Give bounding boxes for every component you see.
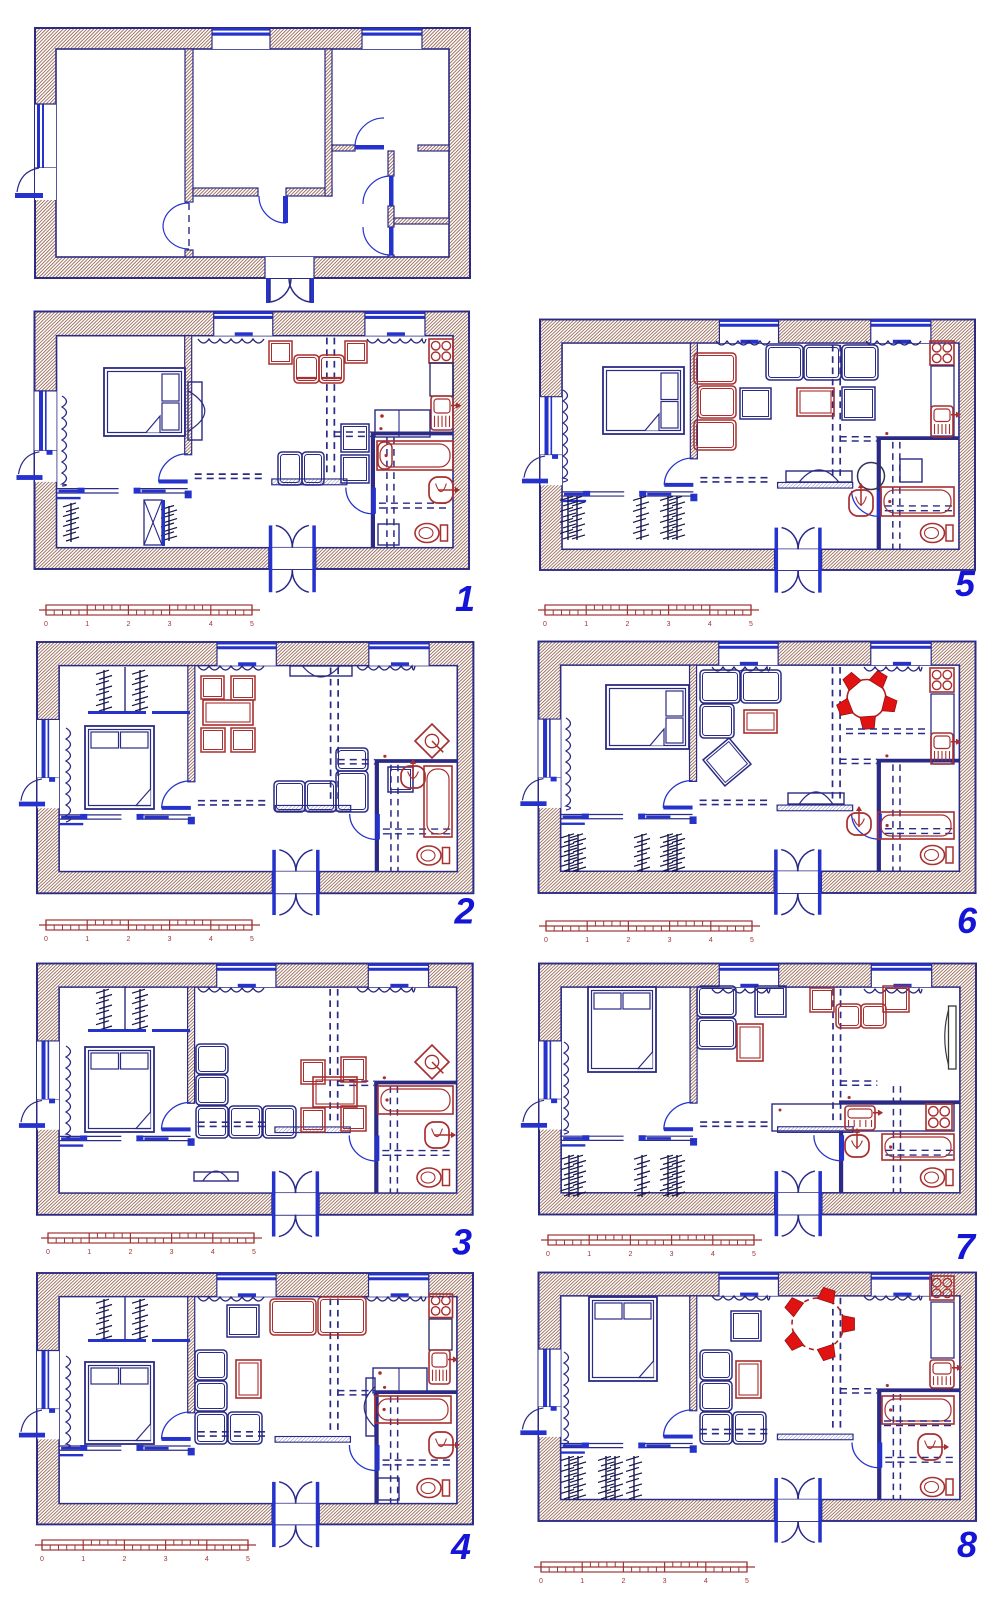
svg-text:3: 3	[670, 1251, 674, 1258]
svg-text:0: 0	[544, 937, 548, 944]
svg-text:4: 4	[708, 621, 712, 628]
svg-text:3: 3	[668, 937, 672, 944]
svg-text:6: 6	[957, 900, 978, 941]
svg-text:3: 3	[667, 621, 671, 628]
svg-text:2: 2	[122, 1556, 126, 1563]
svg-text:4: 4	[709, 937, 713, 944]
svg-text:2: 2	[126, 621, 130, 628]
svg-text:3: 3	[168, 621, 172, 628]
svg-text:2: 2	[625, 621, 629, 628]
svg-text:4: 4	[209, 936, 213, 943]
svg-text:2: 2	[621, 1578, 625, 1585]
svg-text:5: 5	[745, 1578, 749, 1585]
svg-text:5: 5	[252, 1249, 256, 1256]
svg-text:7: 7	[955, 1226, 977, 1267]
svg-text:0: 0	[44, 936, 48, 943]
svg-text:3: 3	[170, 1249, 174, 1256]
svg-text:0: 0	[44, 621, 48, 628]
svg-text:1: 1	[87, 1249, 91, 1256]
svg-text:3: 3	[663, 1578, 667, 1585]
svg-text:5: 5	[750, 937, 754, 944]
svg-text:2: 2	[628, 1251, 632, 1258]
svg-text:8: 8	[957, 1524, 977, 1565]
svg-text:4: 4	[704, 1578, 708, 1585]
svg-text:5: 5	[749, 621, 753, 628]
svg-text:0: 0	[40, 1556, 44, 1563]
svg-text:0: 0	[46, 1249, 50, 1256]
svg-text:5: 5	[955, 563, 976, 604]
svg-text:4: 4	[211, 1249, 215, 1256]
svg-text:3: 3	[164, 1556, 168, 1563]
svg-text:2: 2	[128, 1249, 132, 1256]
svg-text:1: 1	[585, 937, 589, 944]
svg-text:5: 5	[752, 1251, 756, 1258]
svg-text:0: 0	[543, 621, 547, 628]
svg-text:1: 1	[455, 578, 475, 619]
svg-text:1: 1	[85, 621, 89, 628]
svg-text:4: 4	[711, 1251, 715, 1258]
svg-text:2: 2	[626, 937, 630, 944]
svg-text:0: 0	[546, 1251, 550, 1258]
svg-text:2: 2	[126, 936, 130, 943]
svg-text:4: 4	[209, 621, 213, 628]
svg-text:3: 3	[452, 1222, 472, 1263]
svg-text:5: 5	[250, 621, 254, 628]
svg-text:1: 1	[587, 1251, 591, 1258]
svg-text:2: 2	[453, 891, 474, 932]
svg-text:1: 1	[81, 1556, 85, 1563]
svg-text:1: 1	[580, 1578, 584, 1585]
svg-text:5: 5	[246, 1556, 250, 1563]
svg-text:4: 4	[205, 1556, 209, 1563]
svg-text:5: 5	[250, 936, 254, 943]
svg-text:4: 4	[450, 1526, 471, 1567]
svg-text:0: 0	[539, 1578, 543, 1585]
svg-text:1: 1	[85, 936, 89, 943]
svg-text:1: 1	[584, 621, 588, 628]
svg-text:3: 3	[168, 936, 172, 943]
